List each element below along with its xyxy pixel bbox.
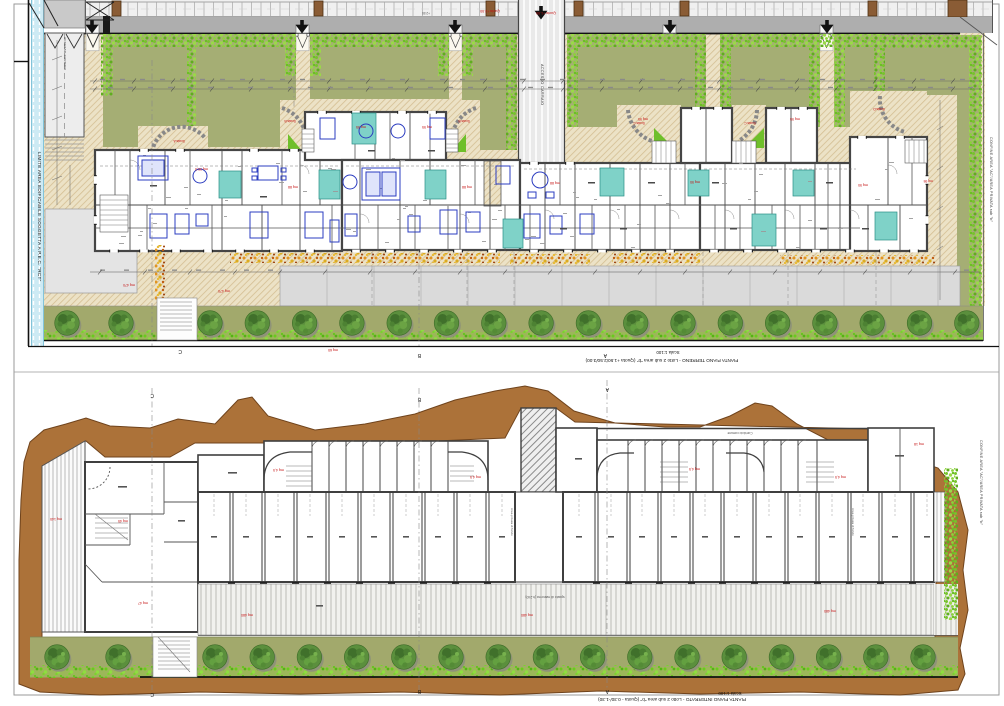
svg-text:mq 45: mq 45 <box>118 519 128 523</box>
svg-text:mq 95: mq 95 <box>356 125 366 129</box>
svg-text:mq 480: mq 480 <box>241 613 253 617</box>
svg-text:CONFINE AREA "AC"/AREA PRIVATA: CONFINE AREA "AC"/AREA PRIVATA sub "b" <box>979 440 983 526</box>
svg-text:+2.50: +2.50 <box>422 11 430 15</box>
svg-text:mq 480: mq 480 <box>824 609 836 613</box>
svg-text:mq 470: mq 470 <box>123 283 135 287</box>
svg-text:C: C <box>150 392 154 398</box>
svg-text:Scala B: Scala B <box>284 119 296 123</box>
svg-text:Area privata di fondo: Area privata di fondo <box>510 508 514 536</box>
svg-text:Quota +2.50: Quota +2.50 <box>480 9 500 13</box>
svg-text:Quota +1.50: Quota +1.50 <box>536 11 556 15</box>
svg-text:mq 480: mq 480 <box>521 613 533 617</box>
svg-text:PIANTA PIANO TERRENO - Lotto 2: PIANTA PIANO TERRENO - Lotto 2 sub area … <box>585 358 738 363</box>
svg-text:mq 95: mq 95 <box>638 117 648 121</box>
svg-text:PIANTA PIANO INTERRATO - Lotto: PIANTA PIANO INTERRATO - Lotto 2 sub are… <box>598 697 746 702</box>
svg-text:mq 4,5: mq 4,5 <box>470 475 481 479</box>
svg-text:mq 4,5: mq 4,5 <box>273 468 284 472</box>
svg-text:mq 88: mq 88 <box>550 181 560 185</box>
svg-text:Area privata di fondo: Area privata di fondo <box>851 508 855 536</box>
svg-text:C: C <box>178 348 182 354</box>
svg-text:ACCESSO CARRAIO: ACCESSO CARRAIO <box>540 64 544 105</box>
svg-text:mq 60: mq 60 <box>328 348 338 352</box>
svg-text:LIMITE AREA EDIFICABILE SOGGET: LIMITE AREA EDIFICABILE SOGGETTA A P.E.C… <box>37 152 42 282</box>
svg-text:mq 4,5: mq 4,5 <box>835 475 846 479</box>
svg-text:mq 88: mq 88 <box>462 185 472 189</box>
svg-text:mq 95: mq 95 <box>923 179 933 183</box>
svg-text:Scala 1:100: Scala 1:100 <box>718 691 742 696</box>
svg-text:spazio di manovra (h.240): spazio di manovra (h.240) <box>525 595 564 599</box>
svg-text:Corridoio comune: Corridoio comune <box>727 431 752 435</box>
svg-text:C: C <box>150 691 154 697</box>
svg-text:Scala C: Scala C <box>744 121 756 125</box>
svg-text:Scala 1:100: Scala 1:100 <box>656 350 680 355</box>
svg-text:mq 88: mq 88 <box>288 185 298 189</box>
svg-text:CONFINE AREA "AC"/AREA PRIVATA: CONFINE AREA "AC"/AREA PRIVATA sub "b" <box>989 137 993 223</box>
svg-text:mq 4,5: mq 4,5 <box>689 467 700 471</box>
svg-text:mq 95: mq 95 <box>790 117 800 121</box>
svg-text:mq 90: mq 90 <box>858 183 868 187</box>
svg-text:mq 47: mq 47 <box>138 601 148 605</box>
svg-text:mq 95: mq 95 <box>422 125 432 129</box>
svg-text:Scala B: Scala B <box>458 119 470 123</box>
svg-text:mq 18: mq 18 <box>914 442 924 446</box>
svg-text:mq 95,5: mq 95,5 <box>195 167 208 171</box>
svg-text:mq 90: mq 90 <box>690 180 700 184</box>
svg-text:mq 140: mq 140 <box>50 517 62 521</box>
svg-text:ACCESSO CARRAIO: ACCESSO CARRAIO <box>63 37 67 70</box>
svg-text:Scala A: Scala A <box>173 139 185 143</box>
svg-text:Scala D: Scala D <box>873 107 885 111</box>
svg-text:mq 470: mq 470 <box>218 289 230 293</box>
